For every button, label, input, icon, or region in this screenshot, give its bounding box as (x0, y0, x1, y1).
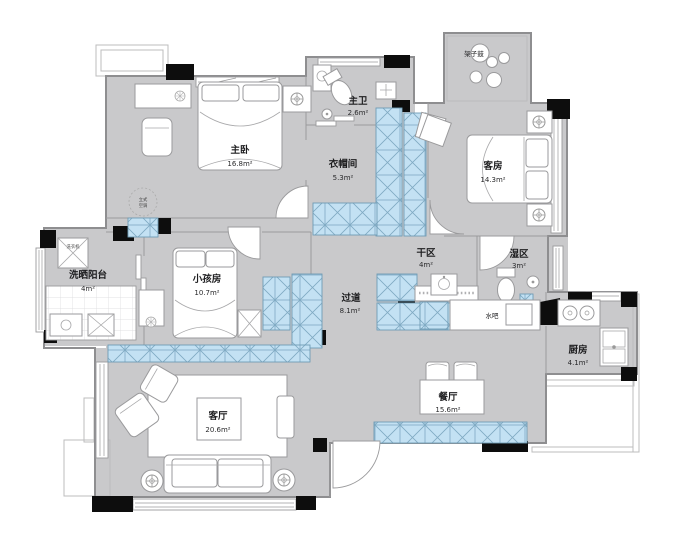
living-side-window (96, 362, 108, 458)
floor-plan-page: 立式 空调 (0, 0, 680, 541)
wet-area-shower (527, 276, 539, 288)
hallway-cabinet-b (292, 274, 322, 348)
svg-text:客房: 客房 (482, 160, 502, 172)
svg-text:3m²: 3m² (512, 262, 526, 270)
svg-text:16.8m²: 16.8m² (227, 160, 252, 168)
guest-nightstand-top (527, 111, 552, 133)
master-nightstand (283, 86, 311, 112)
closet-wardrobe-left (376, 108, 402, 236)
label-hallway: 过道 8.1m² (340, 292, 361, 315)
side-table-left (141, 470, 163, 492)
svg-text:洗衣机: 洗衣机 (67, 243, 81, 250)
svg-text:4m²: 4m² (419, 261, 433, 269)
balcony-counter (46, 286, 136, 340)
kids-desk (139, 290, 164, 327)
guest-bed (467, 135, 552, 203)
svg-text:15.6m²: 15.6m² (435, 406, 460, 414)
sofa (164, 455, 271, 493)
svg-text:8.1m²: 8.1m² (340, 307, 361, 315)
side-table-right (273, 469, 295, 491)
living-window (133, 499, 296, 510)
svg-text:过道: 过道 (341, 292, 361, 304)
shower-head (322, 109, 332, 119)
dry-area-cabinet (377, 274, 417, 301)
svg-text:厨房: 厨房 (568, 344, 587, 356)
svg-text:干区: 干区 (416, 248, 436, 259)
svg-text:洗晒阳台: 洗晒阳台 (69, 269, 108, 281)
kids-nightstand (238, 310, 261, 337)
svg-text:4.1m²: 4.1m² (568, 359, 589, 367)
entry-door (333, 441, 380, 488)
floor-plan: 立式 空调 (0, 0, 680, 541)
svg-text:4m²: 4m² (81, 285, 95, 293)
tv-wall-cabinet (108, 345, 310, 362)
label-kitchen: 厨房 4.1m² (568, 344, 589, 367)
svg-text:2.6m²: 2.6m² (348, 109, 369, 117)
svg-text:湿区: 湿区 (509, 248, 529, 260)
svg-text:5.3m²: 5.3m² (333, 174, 354, 182)
svg-text:衣帽间: 衣帽间 (329, 158, 358, 170)
label-master-bath: 主卫 2.6m² (348, 95, 369, 117)
bath-washer (376, 82, 396, 99)
closet-wardrobe-bottom (313, 203, 377, 235)
svg-text:小孩房: 小孩房 (192, 273, 222, 285)
svg-text:主卫: 主卫 (348, 95, 368, 107)
master-cabinet (128, 218, 158, 237)
washing-machine: 洗衣机 (58, 238, 88, 268)
stove (558, 300, 600, 326)
label-water-bar: 水吧 (486, 311, 500, 320)
balcony-bay-window (36, 248, 45, 332)
svg-text:立式: 立式 (139, 196, 148, 203)
master-chair (142, 118, 172, 156)
guest-nightstand-bottom (527, 204, 552, 226)
svg-text:主卧: 主卧 (230, 144, 250, 156)
wet-area-window (553, 246, 563, 290)
tv-stand (277, 396, 294, 438)
master-dresser (135, 84, 191, 108)
label-dining-room: 餐厅 15.6m² (435, 391, 460, 414)
wet-area-toilet (497, 268, 515, 302)
svg-text:空调: 空调 (139, 202, 148, 209)
hallway-cabinet-a (263, 277, 290, 330)
svg-text:14.3m²: 14.3m² (480, 176, 505, 184)
svg-text:餐厅: 餐厅 (437, 391, 458, 403)
master-bed (198, 82, 282, 170)
svg-text:10.7m²: 10.7m² (194, 289, 219, 297)
kitchen-sink (600, 328, 628, 366)
dining-cabinet (374, 422, 527, 443)
label-drum-kit: 架子鼓 (464, 49, 484, 58)
svg-text:20.6m²: 20.6m² (205, 426, 230, 434)
water-bar-counter (420, 300, 540, 330)
guest-window (551, 113, 562, 233)
svg-text:客厅: 客厅 (207, 410, 228, 422)
